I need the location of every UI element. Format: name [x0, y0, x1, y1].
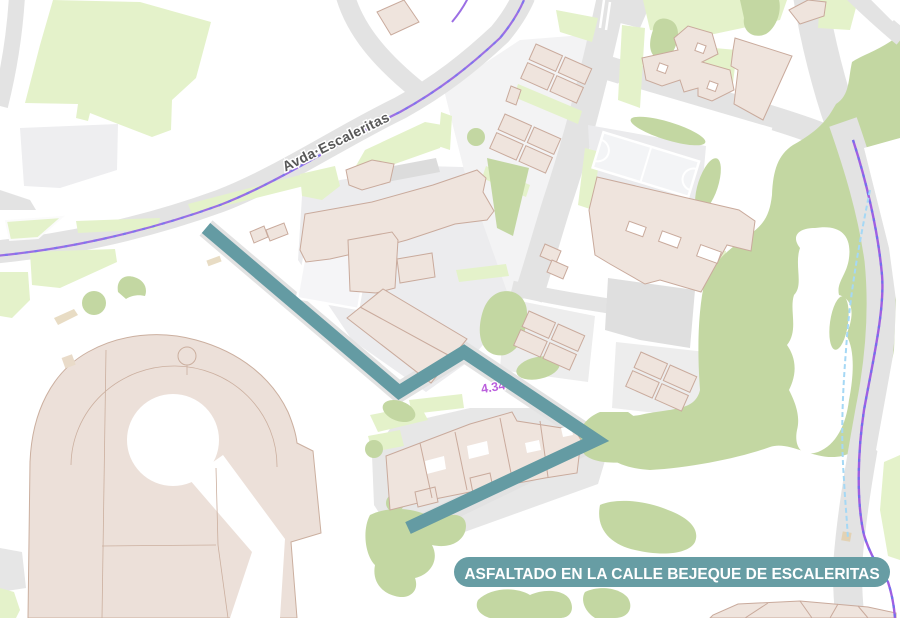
svg-text:ASFALTADO EN LA CALLE BEJEQUE: ASFALTADO EN LA CALLE BEJEQUE DE ESCALER…: [464, 566, 879, 583]
